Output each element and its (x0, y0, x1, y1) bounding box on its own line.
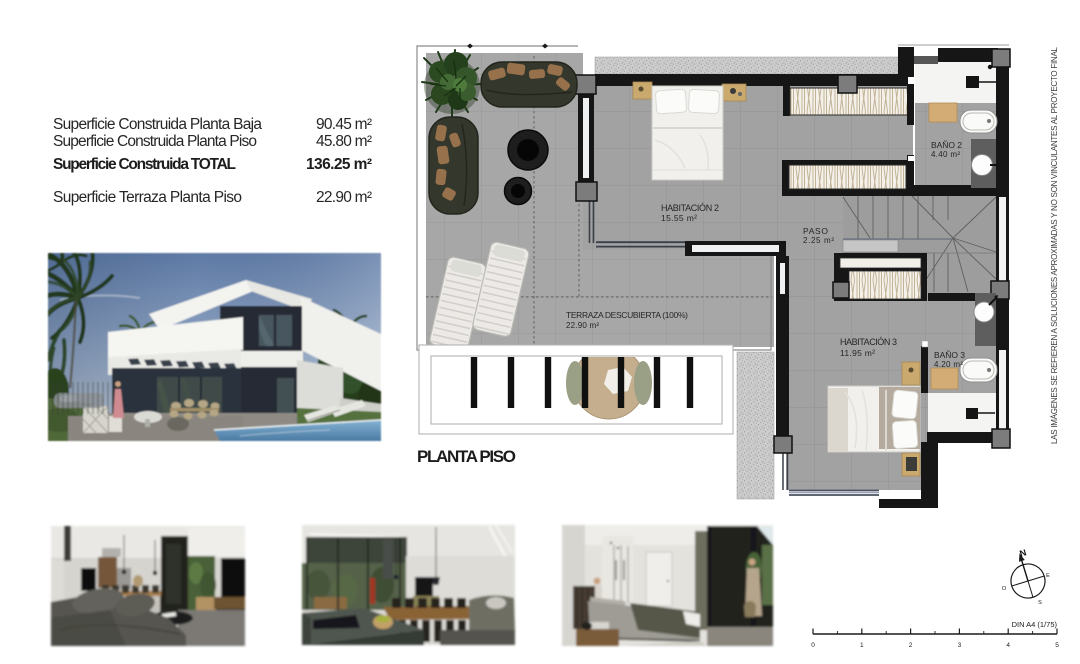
svg-text:22.90 m²: 22.90 m² (316, 189, 372, 206)
svg-text:Superficie Terraza Planta Piso: Superficie Terraza Planta Piso (53, 189, 242, 206)
svg-text:15.55 m²: 15.55 m² (661, 213, 697, 223)
svg-text:1: 1 (860, 642, 864, 649)
svg-text:HABITACIÓN 3: HABITACIÓN 3 (840, 337, 897, 347)
svg-text:E: E (1046, 573, 1050, 579)
svg-text:O: O (1002, 586, 1007, 592)
svg-text:TERRAZA DESCUBIERTA (100%): TERRAZA DESCUBIERTA (100%) (566, 310, 688, 320)
svg-text:22.90 m²: 22.90 m² (566, 321, 599, 330)
svg-text:4.40 m²: 4.40 m² (931, 150, 960, 159)
svg-text:4: 4 (1006, 642, 1010, 649)
svg-text:PLANTA PISO: PLANTA PISO (417, 447, 516, 466)
svg-text:0: 0 (811, 642, 815, 649)
svg-text:90.45 m²: 90.45 m² (316, 116, 372, 133)
svg-text:BAÑO 2: BAÑO 2 (931, 140, 962, 150)
svg-text:PASO: PASO (803, 226, 828, 236)
svg-text:LAS IMÁGENES SE REFIEREN A SOL: LAS IMÁGENES SE REFIEREN A SOLUCIONES AP… (1050, 46, 1059, 444)
svg-text:HABITACIÓN 2: HABITACIÓN 2 (661, 203, 719, 213)
svg-text:2.25 m²: 2.25 m² (803, 236, 834, 245)
svg-text:136.25 m²: 136.25 m² (306, 156, 372, 173)
svg-text:3: 3 (958, 642, 962, 649)
svg-text:Superficie Construida TOTAL: Superficie Construida TOTAL (53, 156, 236, 173)
svg-text:S: S (1038, 600, 1042, 606)
svg-text:5: 5 (1055, 642, 1059, 649)
svg-text:DIN A4 (1/75): DIN A4 (1/75) (1012, 620, 1058, 629)
svg-text:2: 2 (909, 642, 913, 649)
svg-text:Superficie Construida Planta P: Superficie Construida Planta Piso (53, 133, 257, 150)
svg-text:11.95 m²: 11.95 m² (840, 348, 875, 358)
svg-text:45.80 m²: 45.80 m² (316, 133, 372, 150)
svg-text:4.20 m²: 4.20 m² (934, 360, 963, 369)
svg-text:Superficie Construida Planta B: Superficie Construida Planta Baja (53, 116, 262, 133)
svg-text:BAÑO 3: BAÑO 3 (934, 350, 965, 360)
